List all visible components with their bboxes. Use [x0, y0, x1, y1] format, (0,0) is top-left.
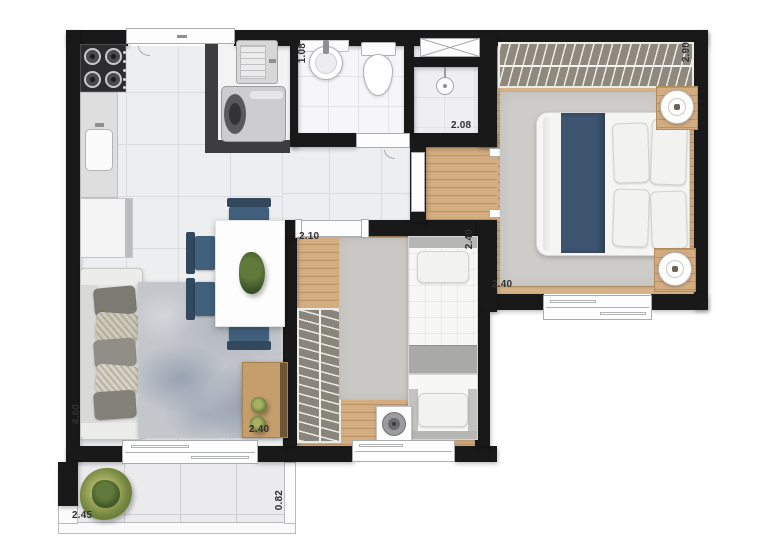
- wall-bedroom1-left: [475, 220, 497, 312]
- main-bedroom-window: [543, 295, 652, 320]
- wall-shower-partition: [404, 46, 414, 133]
- dining-chair-south-back: [227, 341, 271, 350]
- laundry-tank: [236, 40, 278, 84]
- double-bed: [536, 112, 690, 256]
- dim-living-width: 2.40: [249, 424, 269, 435]
- kitchen-counter: [80, 92, 118, 198]
- bathroom-window: [420, 38, 480, 57]
- stove: [80, 44, 126, 92]
- balcony-railing-right: [284, 462, 296, 524]
- nightstand-top: [660, 90, 694, 124]
- kitchen-faucet-icon: [95, 123, 104, 127]
- balcony-railing-bottom: [58, 522, 296, 534]
- lamp-icon: [672, 266, 678, 272]
- single-bed-1: [408, 236, 478, 374]
- dim-balcony-length: 2.45: [72, 510, 92, 521]
- second-bedroom-wardrobe: [297, 308, 341, 443]
- dim-second-bedroom-entry: 2.10: [299, 231, 319, 242]
- hallway-door: [411, 152, 425, 212]
- dim-balcony-depth: 0.82: [274, 490, 285, 510]
- wall-balcony-left: [58, 462, 78, 506]
- toilet: [361, 42, 396, 97]
- side-table: [376, 406, 412, 442]
- bed-runner: [561, 113, 605, 253]
- wall-bottom-b: [256, 446, 353, 462]
- wall-bedroom1-bottom-b: [651, 294, 708, 310]
- second-bedroom-window: [352, 440, 455, 462]
- wall-shower-top: [414, 57, 480, 67]
- apartment-floor-plan: 1.08 2.08 2.90 2.40 2.10 2.40 4.60 2.40 …: [0, 0, 776, 560]
- dim-main-bedroom-depth: 2.90: [681, 42, 692, 62]
- second-bedroom-door-jamb-right: [361, 219, 369, 238]
- dim-living-length: 4.60: [71, 404, 82, 424]
- wall-bathroom-bottom-a: [290, 133, 356, 147]
- tank-faucet-icon: [269, 59, 276, 63]
- entrance-door: [126, 28, 235, 44]
- wall-laundry-left: [205, 44, 218, 153]
- bathroom-door: [356, 133, 410, 148]
- dim-second-bedroom-depth: 2.40: [464, 229, 475, 249]
- shower-head-icon: [436, 67, 454, 97]
- washing-machine: [221, 86, 286, 142]
- main-bedroom-wardrobe: [498, 42, 694, 88]
- nightstand-bottom: [658, 252, 692, 286]
- second-bedroom-rug: [339, 238, 411, 400]
- wall-right: [694, 30, 708, 310]
- dining-chair-west2-back: [186, 278, 195, 320]
- dining-chair-south: [229, 326, 269, 341]
- lamp-icon: [674, 104, 680, 110]
- dining-chair-west1-back: [186, 232, 195, 274]
- sideboard-plant-1: [251, 397, 267, 413]
- dim-bathroom-length: 2.08: [451, 120, 471, 131]
- sofa: [80, 268, 143, 440]
- dining-chair-north-back: [227, 198, 271, 207]
- wall-left: [66, 30, 80, 462]
- hallway-wood-floor: [426, 147, 497, 222]
- wall-bathroom-right: [478, 36, 497, 147]
- wall-bottom-a: [66, 446, 124, 462]
- dim-bathroom-width: 1.08: [297, 43, 308, 63]
- fan-icon: [382, 412, 406, 436]
- dining-chair-west1: [195, 236, 215, 270]
- dim-main-bedroom-width: 2.40: [492, 279, 512, 290]
- wall-bottom-c: [454, 446, 497, 462]
- dining-chair-west2: [195, 282, 215, 316]
- single-bed-2: [408, 374, 478, 440]
- bathroom-faucet-icon: [323, 40, 329, 54]
- kitchen-sink: [85, 129, 113, 171]
- balcony-sliding-door: [122, 440, 258, 464]
- wall-bedroom2-top-b: [362, 220, 475, 236]
- fridge-cabinet: [80, 198, 133, 258]
- table-plant: [239, 252, 265, 294]
